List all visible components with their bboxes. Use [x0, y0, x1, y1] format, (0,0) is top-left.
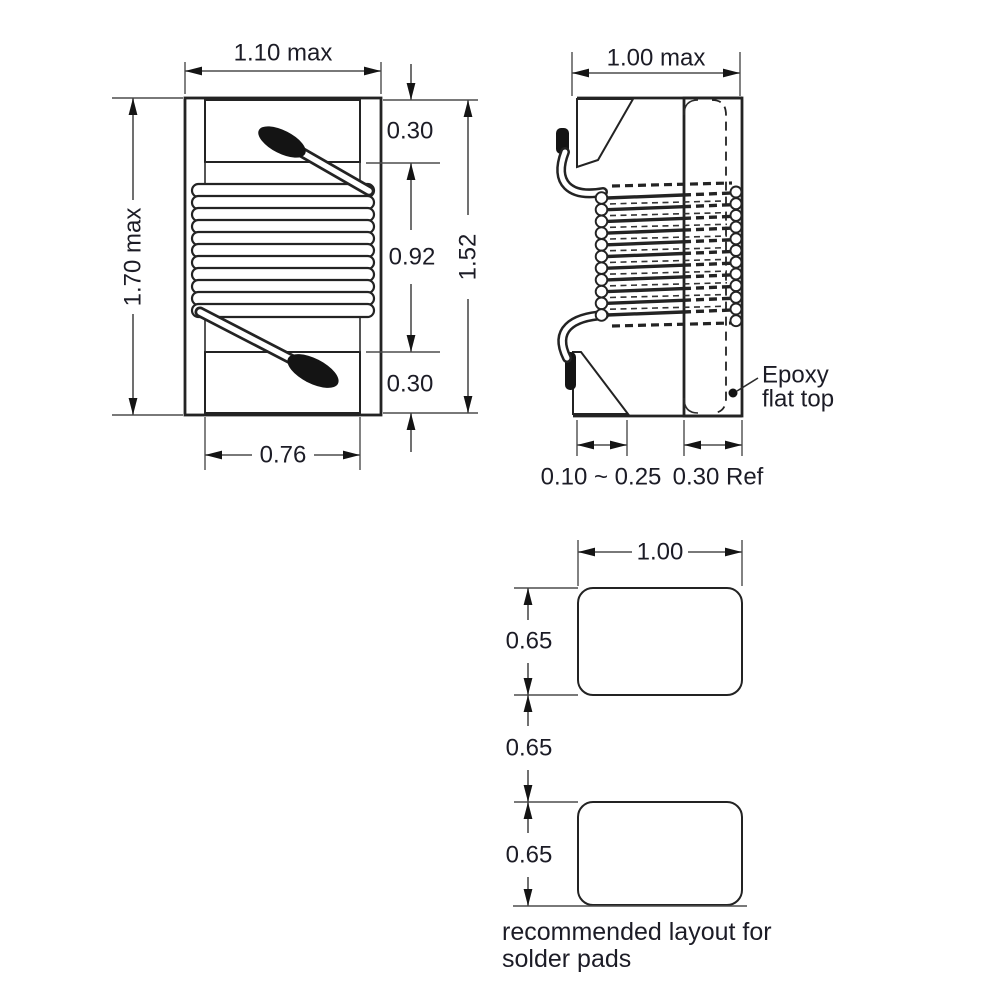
coil-hidden-wire	[683, 275, 732, 277]
pad-layout: 1.00 0.65 0.65 0.65 recommended layout f…	[502, 539, 772, 974]
coil-front-wire	[607, 207, 683, 210]
coil-hidden-wire	[683, 287, 732, 289]
epoxy-leader-line	[737, 378, 758, 391]
ext-width-front	[185, 62, 381, 94]
coil-turn	[192, 304, 374, 317]
coil-back-wire-hidden	[610, 283, 727, 286]
coil-wire-section-left	[596, 227, 608, 239]
label-epoxy-line1: Epoxy	[762, 362, 829, 389]
label-side-width-max: 1.00 max	[607, 45, 706, 72]
coil-front-wire	[607, 312, 683, 315]
coil-front-wire	[607, 300, 683, 303]
label-lead-thickness: 0.10 ~ 0.25	[541, 464, 662, 491]
coil-back-wire-hidden	[610, 224, 727, 227]
coil-hidden-wire	[683, 205, 732, 207]
coil-back-wire-hidden	[610, 248, 727, 251]
label-epoxy-line2: flat top	[762, 386, 834, 413]
label-pad-gap: 0.65	[506, 735, 553, 762]
coil-front-wire	[607, 242, 683, 245]
coil-wire-section-left	[596, 274, 608, 286]
label-body-length: 1.52	[455, 234, 482, 281]
coil-front-wire	[607, 265, 683, 268]
drawing-svg: 1.10 max 1.70 max 0.30 0.92 0.30 1.52 0.…	[0, 0, 1000, 1000]
coil-wire-section-right	[731, 210, 742, 221]
label-terminal-top: 0.30	[387, 118, 434, 145]
coil-wire-section-right	[731, 257, 742, 268]
coil-back-wire-hidden	[610, 201, 727, 204]
side-bottom-terminal-hatch	[573, 352, 628, 414]
coil-wire-section-right	[731, 315, 742, 326]
coil-wire-section-right	[731, 268, 742, 279]
coil-wire-section-left	[596, 262, 608, 274]
ext-pad-heights	[514, 588, 578, 802]
label-pad-width: 1.00	[637, 539, 684, 566]
side-bottom-lead-outline	[562, 315, 604, 358]
coil-wire-section-right	[731, 245, 742, 256]
coil-back-wire-hidden	[610, 271, 727, 274]
label-pad-height-bottom: 0.65	[506, 842, 553, 869]
coil-hidden-wire	[683, 252, 732, 254]
coil-hidden-wire	[683, 240, 732, 242]
epoxy-leader-dot	[729, 389, 738, 398]
coil-back-wire-hidden	[610, 236, 727, 239]
side-top-terminal-hatch	[577, 99, 633, 167]
coil-front-wire	[607, 277, 683, 280]
label-terminal-bottom: 0.30	[387, 371, 434, 398]
coil-hidden-wire	[683, 228, 732, 230]
coil-hidden-turn-top	[612, 183, 732, 186]
coil-hidden-wire	[683, 263, 732, 265]
coil-wire-section-left	[596, 216, 608, 228]
front-coil-winding	[192, 184, 374, 317]
caption-line2: solder pads	[502, 945, 631, 973]
coil-wire-section-right	[731, 222, 742, 233]
coil-hidden-wire	[683, 193, 732, 195]
side-core-hidden-profile	[712, 100, 726, 413]
coil-front-wire	[607, 195, 683, 198]
coil-wire-section-left	[596, 239, 608, 251]
coil-wire-section-right	[731, 304, 742, 315]
label-epoxy-ref: 0.30 Ref	[673, 464, 764, 491]
label-pad-height-top: 0.65	[506, 628, 553, 655]
coil-wire-section-right	[731, 187, 742, 198]
coil-wire-section-left	[596, 204, 608, 216]
coil-wire-section-left	[596, 286, 608, 298]
coil-hidden-turn-bottom	[612, 323, 732, 326]
coil-hidden-wire	[683, 216, 732, 218]
coil-wire-section-right	[731, 233, 742, 244]
side-coil-winding	[596, 183, 742, 326]
coil-wire-section-left	[596, 298, 608, 310]
coil-wire-section-right	[731, 198, 742, 209]
coil-wire-section-right	[731, 292, 742, 303]
coil-front-wire	[607, 230, 683, 233]
coil-wire-section-left	[596, 251, 608, 263]
coil-back-wire-hidden	[610, 295, 727, 298]
coil-back-wire-hidden	[610, 259, 727, 262]
coil-hidden-wire	[683, 298, 732, 300]
coil-back-wire-hidden	[610, 213, 727, 216]
coil-hidden-wire	[683, 310, 732, 312]
label-winding-height: 0.92	[389, 244, 436, 271]
ext-bottom-side	[577, 420, 742, 456]
coil-front-wire	[607, 218, 683, 221]
front-view: 1.10 max 1.70 max 0.30 0.92 0.30 1.52 0.…	[112, 40, 482, 471]
coil-wire-section-left	[596, 192, 608, 204]
coil-front-wire	[607, 254, 683, 257]
coil-front-wire	[607, 289, 683, 292]
side-core-corner-arcs	[684, 100, 698, 413]
label-terminal-width: 0.76	[260, 442, 307, 469]
side-view: Epoxy flat top 1.00 max 0.10 ~ 0.25 0.30…	[541, 45, 834, 491]
coil-wire-section-left	[596, 309, 608, 321]
solder-pad-bottom	[578, 802, 742, 905]
caption-line1: recommended layout for	[502, 918, 772, 946]
solder-pad-top	[578, 588, 742, 695]
coil-back-wire-hidden	[610, 306, 727, 309]
label-width-max: 1.10 max	[234, 40, 333, 67]
coil-wire-section-right	[731, 280, 742, 291]
label-height-max: 1.70 max	[120, 208, 147, 307]
inductor-dimension-drawing: 1.10 max 1.70 max 0.30 0.92 0.30 1.52 0.…	[0, 0, 1000, 1000]
